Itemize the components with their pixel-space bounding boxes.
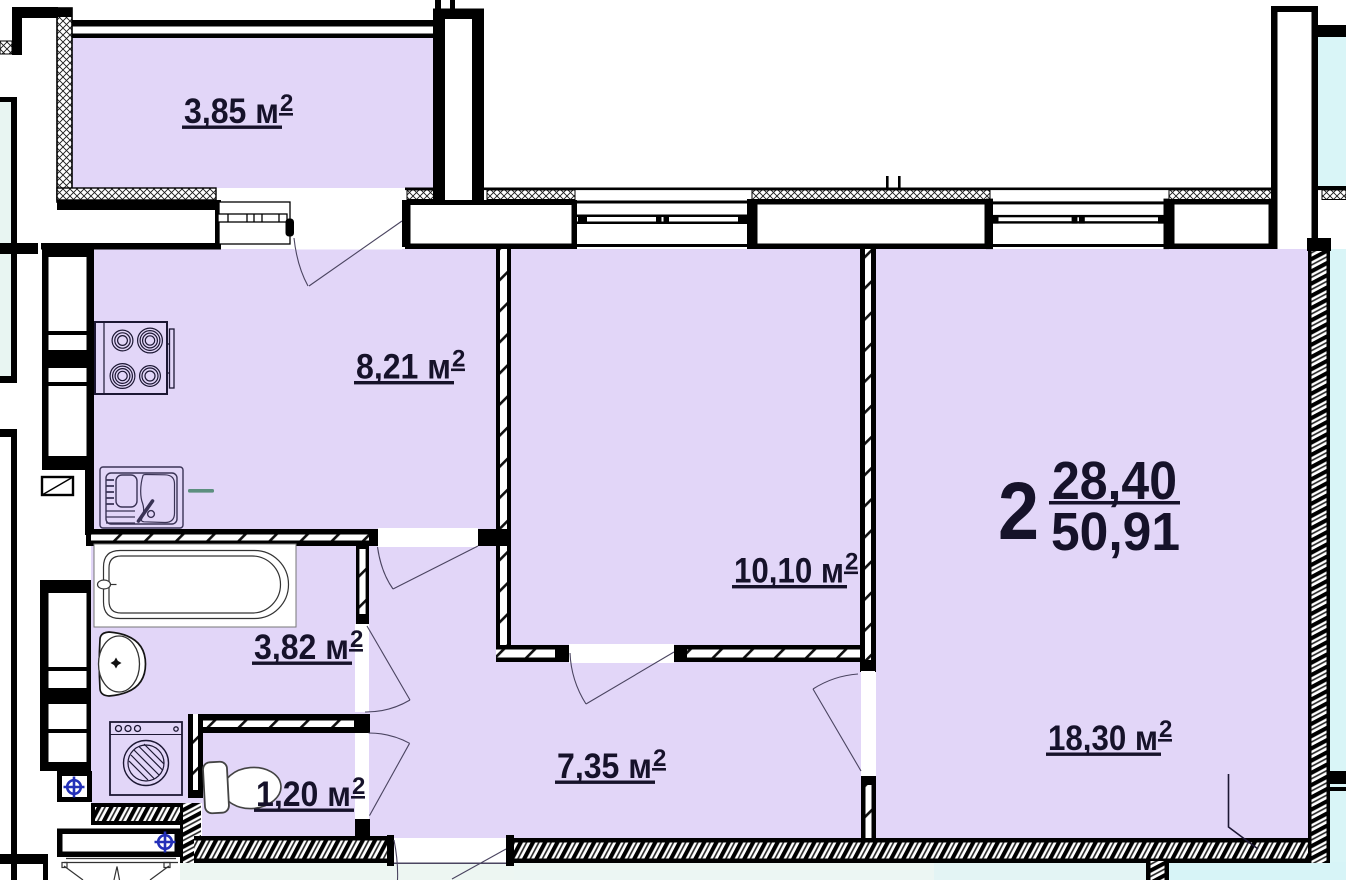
svg-text:2: 2 — [653, 745, 666, 772]
svg-text:50,91: 50,91 — [1051, 502, 1180, 562]
svg-text:18,30 м: 18,30 м — [1048, 719, 1158, 758]
svg-text:2: 2 — [998, 466, 1039, 557]
svg-text:2: 2 — [452, 346, 465, 373]
svg-text:2: 2 — [352, 773, 365, 800]
svg-text:2: 2 — [1159, 716, 1172, 743]
svg-text:2: 2 — [845, 549, 858, 576]
svg-text:2: 2 — [350, 626, 363, 653]
svg-text:7,35 м: 7,35 м — [557, 747, 652, 786]
svg-text:2: 2 — [280, 90, 293, 117]
svg-text:3,82 м: 3,82 м — [254, 628, 349, 667]
svg-text:1,20 м: 1,20 м — [256, 775, 351, 814]
svg-text:10,10 м: 10,10 м — [734, 552, 844, 591]
svg-text:8,21 м: 8,21 м — [356, 348, 451, 387]
svg-text:3,85 м: 3,85 м — [184, 92, 279, 131]
